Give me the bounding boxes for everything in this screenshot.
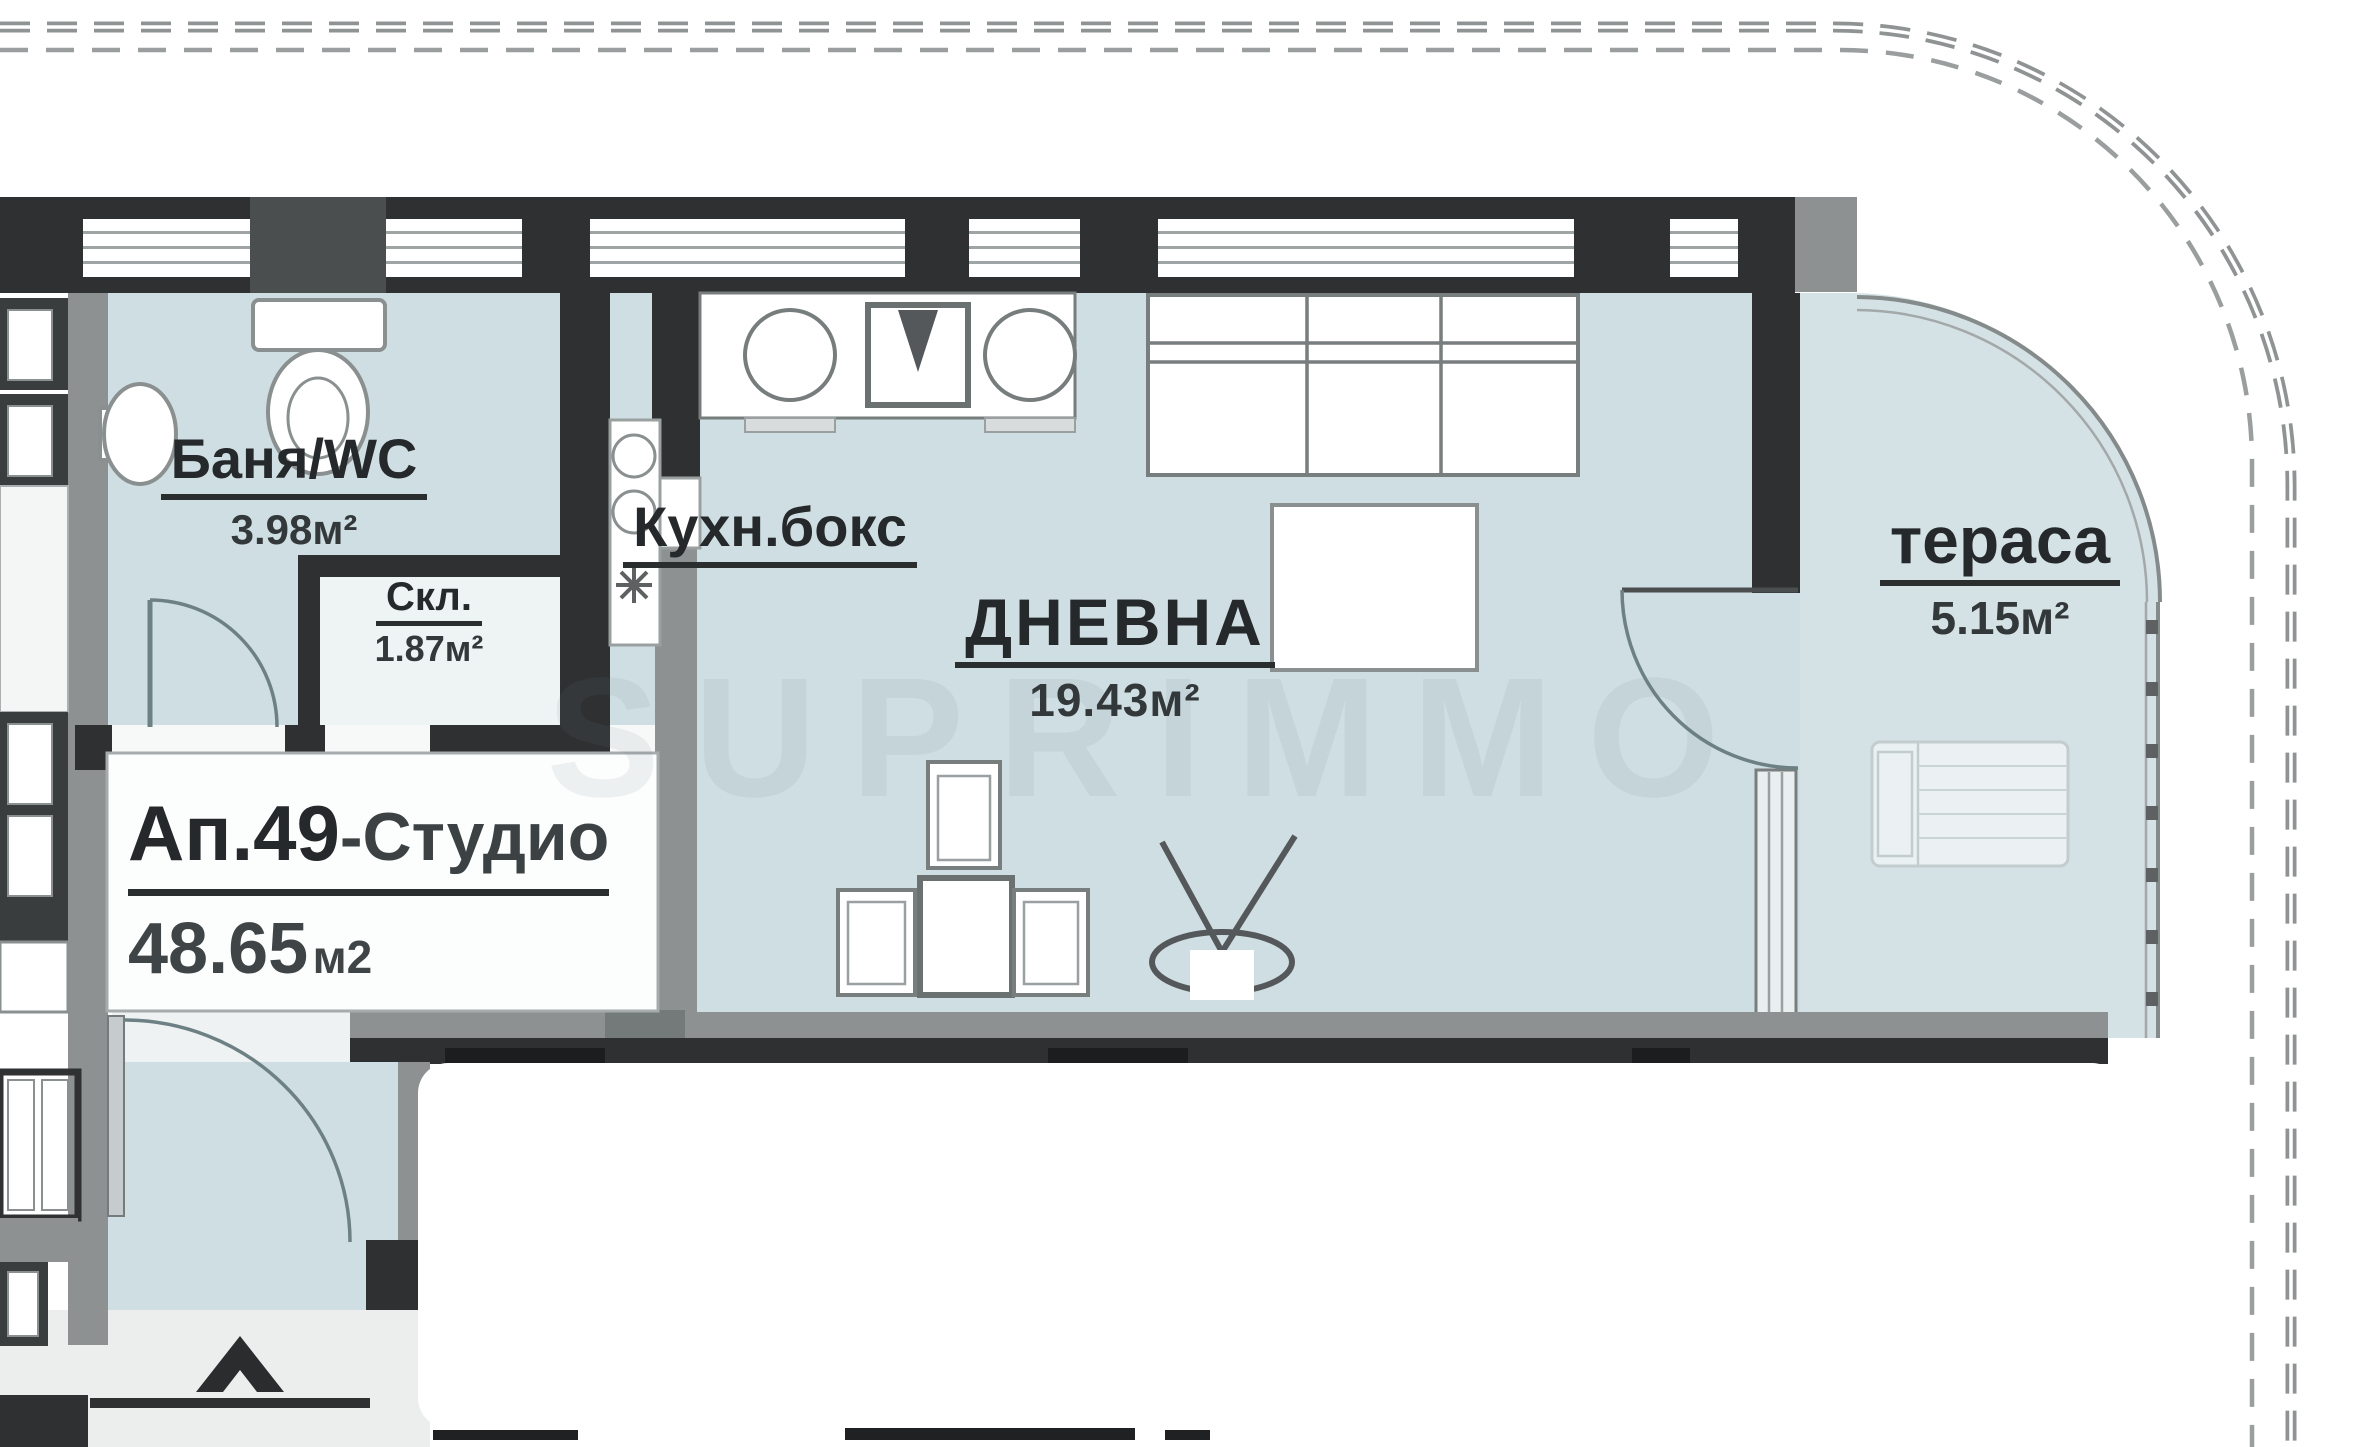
living-room-name: ДНЕВНА xyxy=(955,588,1275,668)
white-cover-box xyxy=(418,1063,2122,1428)
hob-burner xyxy=(985,310,1075,400)
bathroom-label: Баня/WC 3.98м² xyxy=(104,430,484,552)
bathroom-name: Баня/WC xyxy=(161,430,428,500)
gas-symbol xyxy=(616,567,652,603)
terrace-area: 5.15м² xyxy=(1835,594,2165,642)
apartment-area-unit: м2 xyxy=(313,931,373,983)
corridor-floor xyxy=(105,1062,400,1310)
covered-text-fragments xyxy=(433,1428,1210,1440)
kitchen-label: Кухн.бокс xyxy=(590,498,950,568)
terrace-name: тераса xyxy=(1880,506,2120,586)
bathroom-area: 3.98м² xyxy=(104,508,484,552)
apartment-type: -Студио xyxy=(340,799,609,875)
neighbour-unit-fixtures xyxy=(0,293,108,1447)
terrace-floor xyxy=(1800,293,2159,1038)
terrace-label: тераса 5.15м² xyxy=(1835,506,2165,643)
sun-lounger xyxy=(1872,742,2068,866)
apartment-title: Ап.49-Студио 48.65 м2 xyxy=(128,788,658,990)
storage-name: Скл. xyxy=(376,576,482,626)
storage-area: 1.87м² xyxy=(300,630,558,668)
hob-burner xyxy=(745,310,835,400)
sofa xyxy=(1148,295,1578,475)
top-exterior-wall xyxy=(0,197,1857,293)
living-room-area: 19.43м² xyxy=(915,676,1315,724)
floor-plan: SUPRIMMO Баня/WC 3.98м² Скл. 1.87м² Кухн… xyxy=(0,0,2374,1447)
apartment-area-value: 48.65 xyxy=(128,909,308,989)
storage-label: Скл. 1.87м² xyxy=(300,576,558,668)
dining-table xyxy=(920,878,1012,995)
living-room-label: ДНЕВНА 19.43м² xyxy=(915,588,1315,725)
apartment-number: Ап.49 xyxy=(128,789,340,877)
kitchen-name: Кухн.бокс xyxy=(623,498,917,568)
